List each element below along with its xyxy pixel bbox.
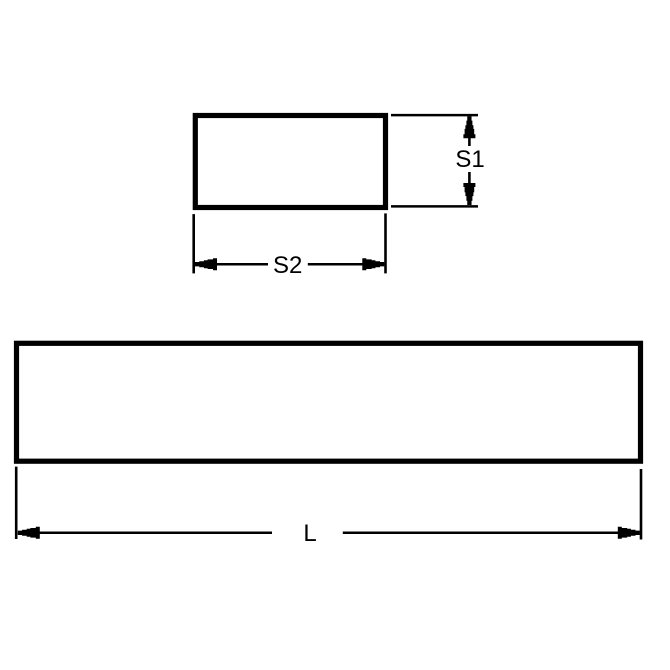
svg-text:L: L (303, 520, 316, 547)
svg-text:S2: S2 (273, 252, 302, 279)
svg-text:S1: S1 (455, 146, 484, 173)
